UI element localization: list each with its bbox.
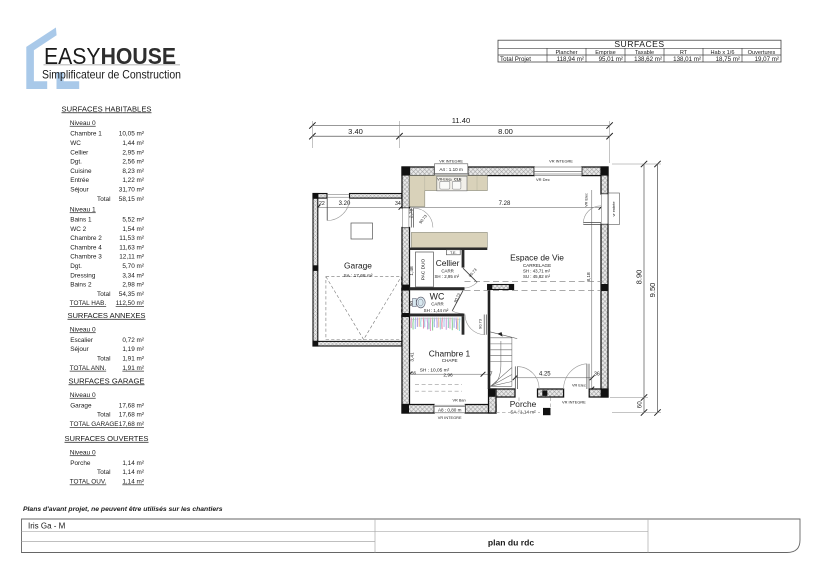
svg-text:Niveau 0: Niveau 0 (70, 449, 96, 456)
svg-text:31,70 m²: 31,70 m² (119, 187, 144, 194)
svg-text:54,35 m²: 54,35 m² (119, 291, 144, 298)
svg-text:138,01 m²: 138,01 m² (673, 56, 701, 63)
svg-text:TOTAL GARAGE: TOTAL GARAGE (70, 421, 119, 428)
svg-text:112,50 m²: 112,50 m² (116, 300, 144, 307)
svg-text:Chambre 3: Chambre 3 (70, 254, 102, 261)
svg-text:Simplificateur de Construction: Simplificateur de Construction (42, 68, 181, 82)
svg-text:12,11 m²: 12,11 m² (119, 254, 144, 261)
svg-text:1,91 m²: 1,91 m² (122, 356, 144, 363)
svg-text:Total: Total (97, 196, 111, 203)
svg-text:Séjour: Séjour (70, 187, 89, 194)
svg-text:36: 36 (411, 370, 417, 375)
svg-text:WC: WC (430, 292, 445, 302)
svg-text:8,18: 8,18 (586, 272, 592, 282)
svg-text:3.40: 3.40 (348, 127, 363, 136)
svg-text:CARR: CARR (431, 301, 443, 306)
svg-text:90.73: 90.73 (478, 318, 483, 329)
svg-text:5,70 m²: 5,70 m² (122, 263, 144, 270)
svg-text:3,34 m²: 3,34 m² (122, 272, 144, 279)
svg-text:VR INTEGRE: VR INTEGRE (562, 399, 586, 404)
svg-text:22: 22 (319, 201, 325, 207)
svg-text:T.E.: T.E. (450, 251, 457, 255)
svg-text:SURFACES ANNEXES: SURFACES ANNEXES (68, 311, 146, 320)
svg-text:18,75 m²: 18,75 m² (716, 56, 740, 63)
svg-text:A4 : 1.10 m: A4 : 1.10 m (439, 167, 463, 172)
svg-text:plan du rdc: plan du rdc (488, 538, 535, 548)
svg-text:Dressing: Dressing (70, 272, 96, 279)
svg-text:SURFACES HABITABLES: SURFACES HABITABLES (62, 104, 152, 113)
svg-text:EASYHOUSE: EASYHOUSE (44, 43, 176, 69)
svg-text:SURFACES: SURFACES (614, 39, 664, 49)
svg-text:4.25: 4.25 (539, 372, 551, 378)
svg-text:VR Elec: VR Elec (572, 383, 586, 387)
svg-text:Niveau 0: Niveau 0 (70, 392, 96, 399)
svg-text:vr entrée: vr entrée (612, 202, 616, 217)
svg-text:CARR: CARR (441, 269, 453, 274)
svg-text:Garage: Garage (70, 402, 92, 409)
svg-text:1,19 m²: 1,19 m² (122, 346, 144, 353)
svg-text:CHAPE: CHAPE (442, 358, 458, 363)
svg-text:TOTAL HAB.: TOTAL HAB. (70, 300, 107, 307)
svg-text:Cellier: Cellier (436, 258, 460, 268)
svg-text:1,14 m²: 1,14 m² (122, 460, 144, 467)
svg-text:Total: Total (97, 412, 111, 419)
svg-text:Dgt.: Dgt. (70, 263, 82, 270)
svg-text:138,62 m²: 138,62 m² (634, 56, 662, 63)
svg-text:Porche: Porche (70, 460, 91, 467)
svg-text:1,44 m²: 1,44 m² (122, 140, 144, 147)
svg-text:Bains 2: Bains 2 (70, 282, 92, 289)
svg-text:TOTAL OUV.: TOTAL OUV. (70, 479, 107, 486)
svg-text:Cuisine: Cuisine (70, 168, 92, 175)
svg-text:8,23 m²: 8,23 m² (122, 168, 144, 175)
svg-text:1,91 m²: 1,91 m² (122, 365, 144, 372)
svg-text:11,63 m²: 11,63 m² (119, 244, 144, 251)
svg-text:Garage: Garage (344, 261, 372, 271)
svg-text:CARRELAGE: CARRELAGE (523, 263, 551, 268)
svg-text:Entrée: Entrée (70, 177, 89, 184)
svg-text:Total: Total (97, 356, 111, 363)
svg-text:Plans d'avant projet, ne peuve: Plans d'avant projet, ne peuvent être ut… (23, 506, 223, 513)
svg-text:17,68 m²: 17,68 m² (119, 421, 144, 428)
svg-text:PAC DUO: PAC DUO (421, 258, 427, 280)
svg-text:Chambre 4: Chambre 4 (70, 244, 102, 251)
svg-text:Cellier: Cellier (70, 149, 89, 156)
svg-text:0,72 m²: 0,72 m² (122, 337, 144, 344)
svg-text:17,68 m²: 17,68 m² (119, 412, 144, 419)
svg-text:SA : 17,68 m²: SA : 17,68 m² (343, 273, 372, 279)
svg-text:2,56 m²: 2,56 m² (122, 159, 144, 166)
svg-text:VR INTEGRE: VR INTEGRE (438, 415, 462, 420)
svg-text:2,95 m²: 2,95 m² (122, 149, 144, 156)
svg-text:VR INTEGRE: VR INTEGRE (549, 159, 573, 164)
svg-text:Total Projet: Total Projet (500, 56, 531, 63)
svg-text:WC 2: WC 2 (70, 226, 86, 233)
svg-text:CLE: CLE (454, 177, 462, 181)
svg-text:Bains 1: Bains 1 (70, 217, 92, 224)
svg-text:1,14 m²: 1,14 m² (122, 479, 144, 486)
svg-text:Espace de Vie: Espace de Vie (510, 253, 564, 263)
svg-text:Niveau 0: Niveau 0 (70, 326, 96, 333)
svg-text:11,53 m²: 11,53 m² (119, 235, 144, 242)
svg-text:Escalier: Escalier (70, 337, 94, 344)
svg-text:7.28: 7.28 (499, 201, 511, 207)
svg-text:SU : 45,82 m²: SU : 45,82 m² (523, 274, 551, 279)
svg-text:10,05 m²: 10,05 m² (119, 131, 144, 138)
svg-text:58,15 m²: 58,15 m² (119, 196, 144, 203)
svg-text:VR Elec: VR Elec (585, 193, 589, 207)
svg-text:9.50: 9.50 (648, 283, 657, 298)
svg-text:SH : 2,95 m²: SH : 2,95 m² (434, 274, 459, 279)
svg-text:34: 34 (395, 201, 401, 207)
svg-text:VR INTEGRE: VR INTEGRE (439, 159, 463, 164)
svg-text:2,98 m²: 2,98 m² (122, 282, 144, 289)
svg-text:VR Dec: VR Dec (536, 177, 550, 182)
svg-text:Iris Ga - M: Iris Ga - M (28, 522, 66, 531)
svg-text:Chambre 1: Chambre 1 (70, 131, 102, 138)
svg-text:36: 36 (594, 372, 600, 378)
svg-text:SURFACES GARAGE: SURFACES GARAGE (69, 376, 145, 385)
svg-text:Niveau 1: Niveau 1 (70, 206, 96, 213)
svg-text:Chambre 1: Chambre 1 (429, 349, 471, 359)
svg-text:Niveau 0: Niveau 0 (70, 120, 96, 127)
svg-text:SA : 1,14 m²: SA : 1,14 m² (510, 410, 536, 415)
svg-text:95,01 m²: 95,01 m² (599, 56, 623, 63)
svg-text:1,54 m²: 1,54 m² (122, 226, 144, 233)
svg-text:Séjour: Séjour (70, 346, 89, 353)
svg-text:SH : 43,71 m²: SH : 43,71 m² (523, 269, 551, 274)
svg-text:WC: WC (70, 140, 81, 147)
svg-text:Chambre 2: Chambre 2 (70, 235, 102, 242)
svg-text:VR-Elec: VR-Elec (437, 177, 450, 181)
svg-text:118,94 m²: 118,94 m² (557, 56, 584, 63)
svg-text:SH : 1,44 m²: SH : 1,44 m² (424, 308, 449, 313)
svg-text:SURFACES OUVERTES: SURFACES OUVERTES (65, 434, 149, 443)
svg-text:11.40: 11.40 (452, 116, 470, 125)
svg-text:8.90: 8.90 (635, 270, 644, 285)
svg-text:2,96: 2,96 (443, 372, 453, 378)
svg-text:17,68 m²: 17,68 m² (119, 402, 144, 409)
svg-text:60: 60 (637, 401, 644, 409)
svg-text:1,22 m²: 1,22 m² (122, 177, 144, 184)
svg-text:19,07 m²: 19,07 m² (755, 56, 779, 63)
svg-text:TOTAL ANN.: TOTAL ANN. (70, 365, 107, 372)
svg-text:1,14 m²: 1,14 m² (122, 469, 144, 476)
svg-text:Total: Total (97, 469, 111, 476)
svg-text:A8 : 0,80 m: A8 : 0,80 m (438, 408, 462, 413)
svg-text:5,52 m²: 5,52 m² (122, 217, 144, 224)
svg-text:8.00: 8.00 (498, 127, 513, 136)
svg-text:Porche: Porche (510, 399, 537, 409)
svg-text:Dgt.: Dgt. (70, 159, 82, 166)
svg-text:Total: Total (97, 291, 111, 298)
svg-text:VR Ban: VR Ban (453, 399, 466, 403)
svg-text:3,41: 3,41 (410, 352, 416, 362)
